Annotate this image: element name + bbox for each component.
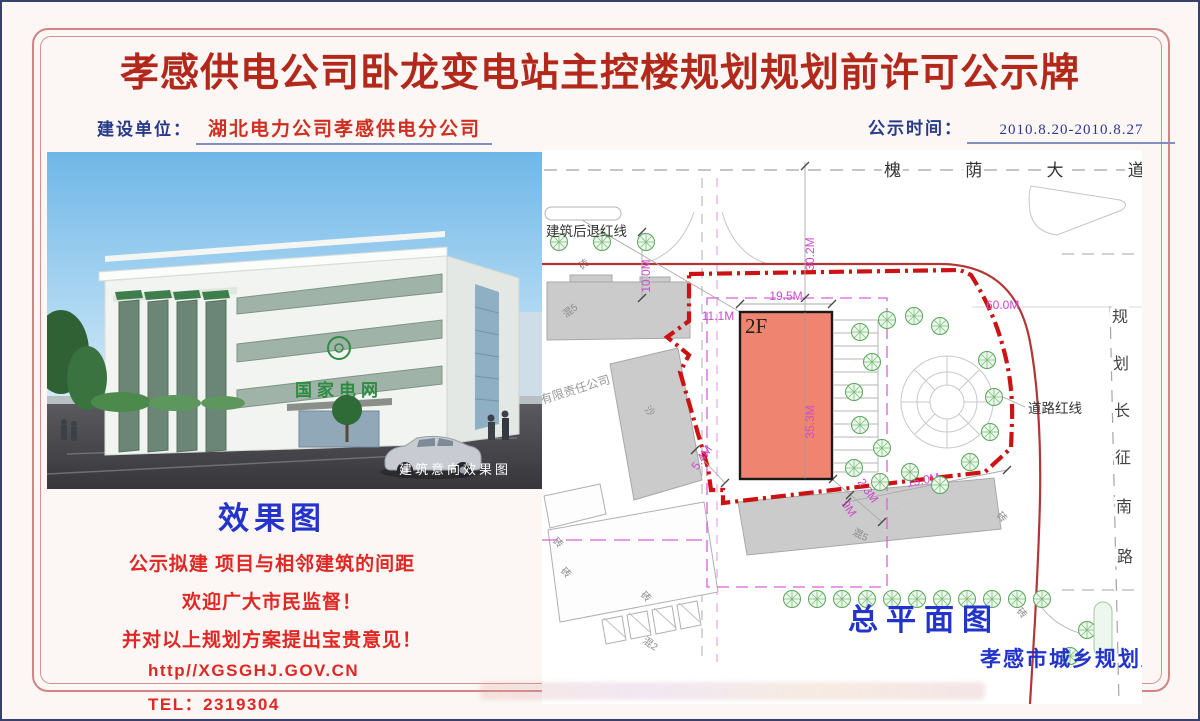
notice-website: http//XGSGHJ.GOV.CN: [52, 661, 492, 681]
builder-row: 建设单位： 湖北电力公司孝感供电分公司: [97, 114, 492, 145]
svg-text:11.1M: 11.1M: [702, 309, 734, 323]
svg-text:30.2M: 30.2M: [803, 237, 817, 270]
notice-line-3: 并对以上规划方案提出宝贵意见！: [52, 625, 492, 652]
page-title: 孝感供电公司卧龙变电站主控楼规划规划前许可公示牌: [62, 42, 1138, 98]
svg-text:路: 路: [1117, 548, 1133, 566]
plan-title: 总平面图: [848, 604, 1000, 637]
agency-name: 孝感市城乡规划局: [980, 647, 1142, 671]
svg-text:南: 南: [1116, 498, 1132, 516]
svg-text:19.5M: 19.5M: [769, 289, 802, 303]
publicity-time-label: 公示时间：: [868, 119, 963, 138]
rendering-heading: 效果图: [52, 493, 492, 538]
photo-caption: 建筑意向效果图: [399, 462, 511, 477]
notice-line-2: 欢迎广大市民监督！: [52, 587, 492, 614]
notice-board-page: 孝感供电公司卧龙变电站主控楼规划规划前许可公示牌 建设单位： 湖北电力公司孝感供…: [0, 0, 1200, 721]
watermark-smudge: [480, 682, 985, 700]
road-name-top: 槐 荫 大 道: [884, 161, 1142, 180]
building-floors-label: 2F: [745, 314, 767, 338]
site-plan: 砖 混5 沙 混5 砖 砖 砖 砖 混2 砖 有限责任公司: [542, 150, 1142, 704]
publicity-time-row: 公示时间： 2010.8.20-2010.8.27: [868, 114, 1175, 144]
svg-text:35.3M: 35.3M: [803, 405, 817, 438]
publicity-time-value: 2010.8.20-2010.8.27: [967, 122, 1175, 144]
setback-redline-label: 建筑后退红线: [546, 224, 627, 239]
svg-text:征: 征: [1115, 449, 1131, 467]
svg-text:60.0M: 60.0M: [986, 298, 1019, 312]
state-grid-text: 国家电网: [295, 380, 383, 400]
svg-text:划: 划: [1113, 355, 1129, 373]
notice-tel: TEL：2319304: [52, 690, 492, 715]
notice-text-block: 效果图 公示拟建 项目与相邻建筑的间距 欢迎广大市民监督！ 并对以上规划方案提出…: [52, 493, 492, 715]
notice-line-1: 公示拟建 项目与相邻建筑的间距: [52, 549, 492, 576]
road-redline-label: 道路红线: [1028, 401, 1082, 416]
building-rendering-photo: 国家电网: [47, 152, 542, 489]
svg-text:长: 长: [1114, 402, 1130, 420]
builder-value: 湖北电力公司孝感供电分公司: [196, 114, 492, 145]
builder-label: 建设单位：: [97, 120, 192, 139]
garden-feature: [901, 356, 993, 448]
svg-text:规: 规: [1112, 308, 1128, 326]
svg-text:10.0M: 10.0M: [639, 259, 653, 292]
